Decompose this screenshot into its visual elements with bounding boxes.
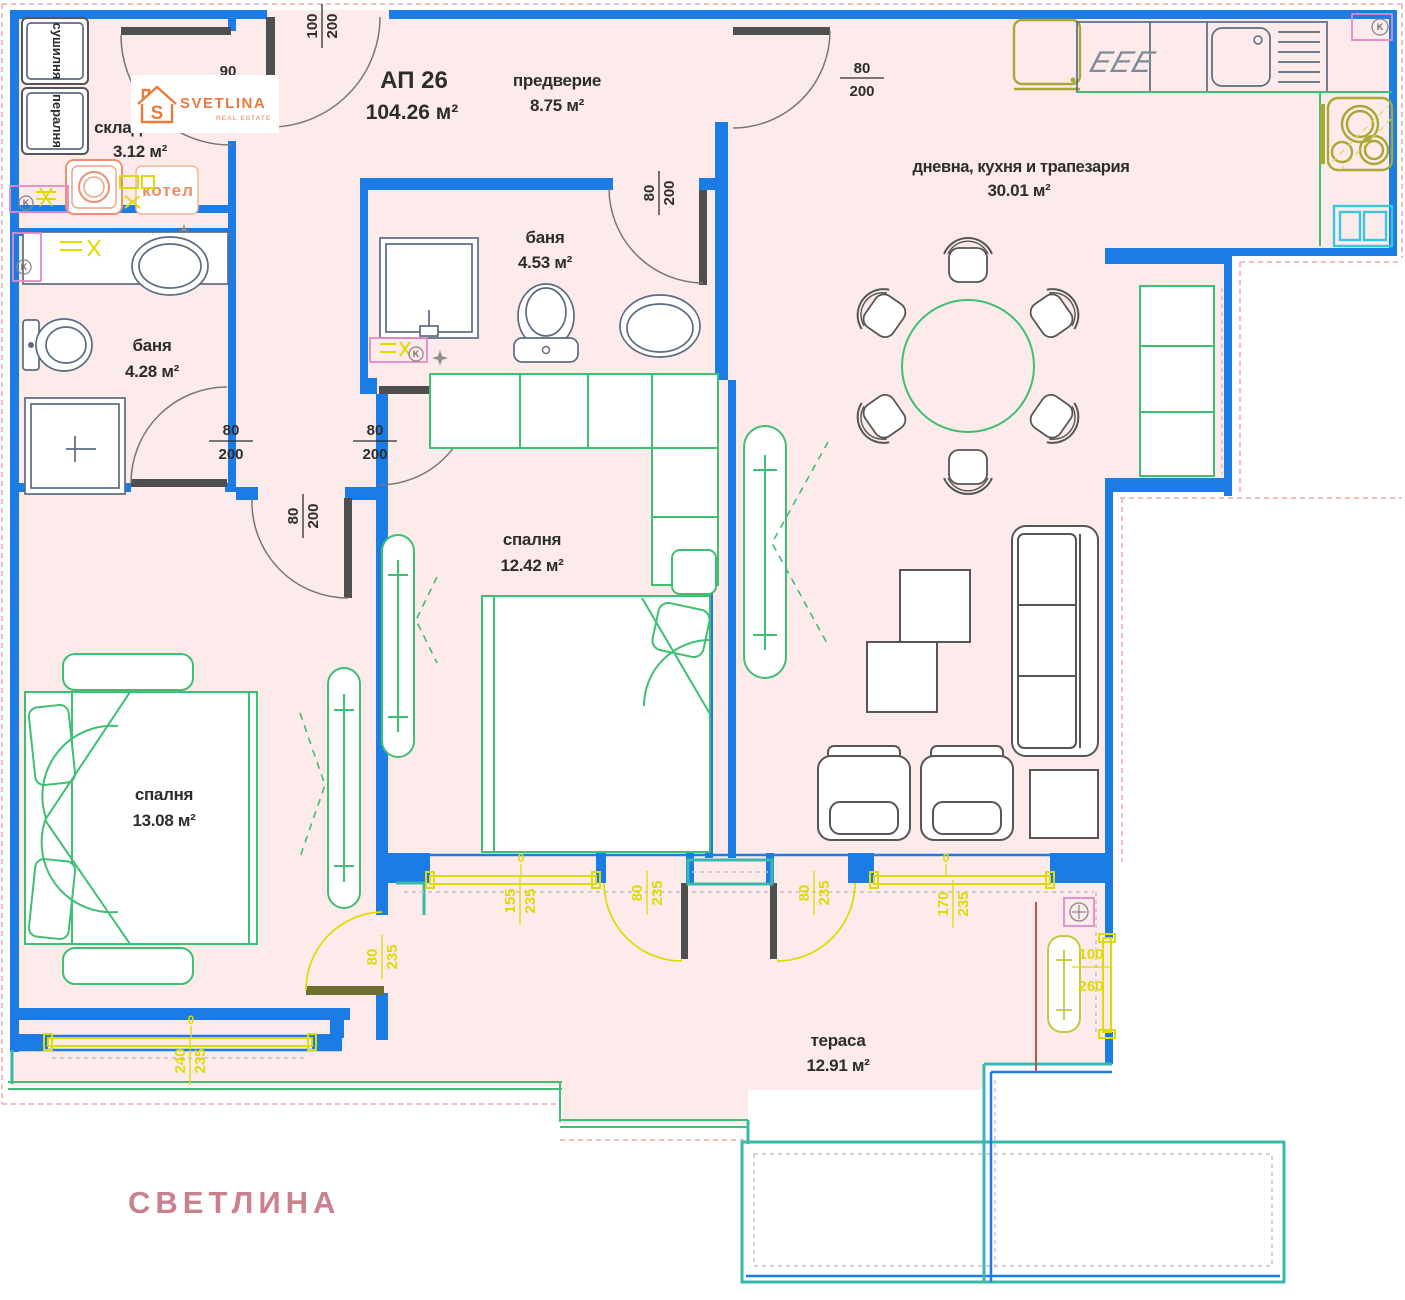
svg-text:170: 170 xyxy=(935,891,952,916)
sofa xyxy=(1012,526,1098,756)
room-area-terrace: 12.91 м² xyxy=(806,1056,870,1075)
svg-text:260: 260 xyxy=(1078,978,1103,995)
boiler-label: котел xyxy=(142,181,194,200)
svg-text:0: 0 xyxy=(518,851,525,865)
room-area-hallway: 8.75 м² xyxy=(530,96,585,115)
room-area-bed2: 12.42 м² xyxy=(500,556,564,575)
hall-niche-cabinet xyxy=(1140,286,1222,476)
bed1-bench-top xyxy=(63,654,193,690)
svg-text:80: 80 xyxy=(796,885,813,902)
svg-text:80: 80 xyxy=(629,885,646,902)
svg-text:200: 200 xyxy=(305,503,322,528)
room-area-bath1: 4.28 м² xyxy=(125,362,180,381)
dryer-label: сушилня xyxy=(50,23,65,80)
bath1-sink xyxy=(132,237,208,295)
svg-text:80: 80 xyxy=(285,508,302,525)
logo: S SVETLINA REAL ESTATE xyxy=(131,75,279,133)
logo-letter: S xyxy=(151,103,164,124)
svg-text:80: 80 xyxy=(367,422,384,439)
svg-text:235: 235 xyxy=(955,891,972,916)
bed1-pillow xyxy=(28,858,76,940)
room-label-bed1: спалня xyxy=(135,785,193,804)
room-label-terrace: тераса xyxy=(811,1031,867,1050)
svg-text:100: 100 xyxy=(304,13,321,38)
bath2-shower xyxy=(380,238,478,338)
terrace-radiator xyxy=(1048,936,1080,1032)
floorplan-drawing: сушилня пералня котел K xyxy=(0,0,1405,1300)
room-label-bed2: спалня xyxy=(503,530,561,549)
room-area-bed1: 13.08 м² xyxy=(132,811,196,830)
room-label-hallway: предверие xyxy=(513,71,601,90)
room-label-bath2: баня xyxy=(526,228,565,247)
logo-brand-text: SVETLINA xyxy=(180,95,266,112)
armchair xyxy=(921,746,1013,840)
side-table xyxy=(1030,770,1098,838)
coffee-table xyxy=(867,642,937,712)
svg-text:235: 235 xyxy=(816,880,833,905)
room-label-living: дневна, кухня и трапезария xyxy=(913,158,1130,176)
svg-text:235: 235 xyxy=(192,1048,209,1073)
washing-machine xyxy=(66,160,122,214)
apartment-id: АП 26 xyxy=(380,67,448,94)
room-label-bath1: баня xyxy=(133,336,172,355)
svg-text:200: 200 xyxy=(661,180,678,205)
vent-icon: K xyxy=(23,198,30,208)
svg-text:0: 0 xyxy=(943,851,950,865)
svg-text:235: 235 xyxy=(649,880,666,905)
bed2-nightstand xyxy=(672,550,716,594)
vent-icon: K xyxy=(413,349,420,359)
svg-text:80: 80 xyxy=(854,60,871,77)
room-area-storage: 3.12 м² xyxy=(113,142,168,161)
svg-text:200: 200 xyxy=(324,13,341,38)
room-area-bath2: 4.53 м² xyxy=(518,253,573,272)
vent-icon: K xyxy=(21,262,28,272)
logo-tagline: REAL ESTATE xyxy=(216,115,271,122)
svg-text:155: 155 xyxy=(502,888,519,913)
svg-text:80: 80 xyxy=(223,422,240,439)
apartment-area: 104.26 м² xyxy=(366,101,459,124)
coffee-table xyxy=(900,570,970,642)
svg-text:0: 0 xyxy=(188,1013,195,1027)
svg-text:200: 200 xyxy=(362,446,387,463)
svg-text:235: 235 xyxy=(522,888,539,913)
room-area-living: 30.01 м² xyxy=(987,181,1051,200)
vent-icon: K xyxy=(1377,22,1384,32)
stove-icon: EEE xyxy=(1086,45,1160,79)
floorplan-canvas: сушилня пералня котел K xyxy=(0,0,1405,1300)
bed1-bench-bottom xyxy=(63,948,193,984)
svg-text:80: 80 xyxy=(364,949,381,966)
svg-text:235: 235 xyxy=(384,944,401,969)
svg-text:200: 200 xyxy=(218,446,243,463)
svg-text:80: 80 xyxy=(641,185,658,202)
svg-text:240: 240 xyxy=(172,1048,189,1073)
washer-label: пералня xyxy=(50,94,65,148)
armchair xyxy=(818,746,910,840)
svg-text:200: 200 xyxy=(849,83,874,100)
bath1-toilet xyxy=(23,319,92,371)
svg-text:100: 100 xyxy=(1078,946,1103,963)
bed1-pillow xyxy=(28,704,76,786)
bath2-toilet xyxy=(514,284,578,362)
bed2 xyxy=(482,596,711,852)
watermark: СВЕТЛИНА xyxy=(128,1185,340,1220)
bath1-shower xyxy=(25,398,125,494)
boiler-box: котел xyxy=(136,166,198,214)
